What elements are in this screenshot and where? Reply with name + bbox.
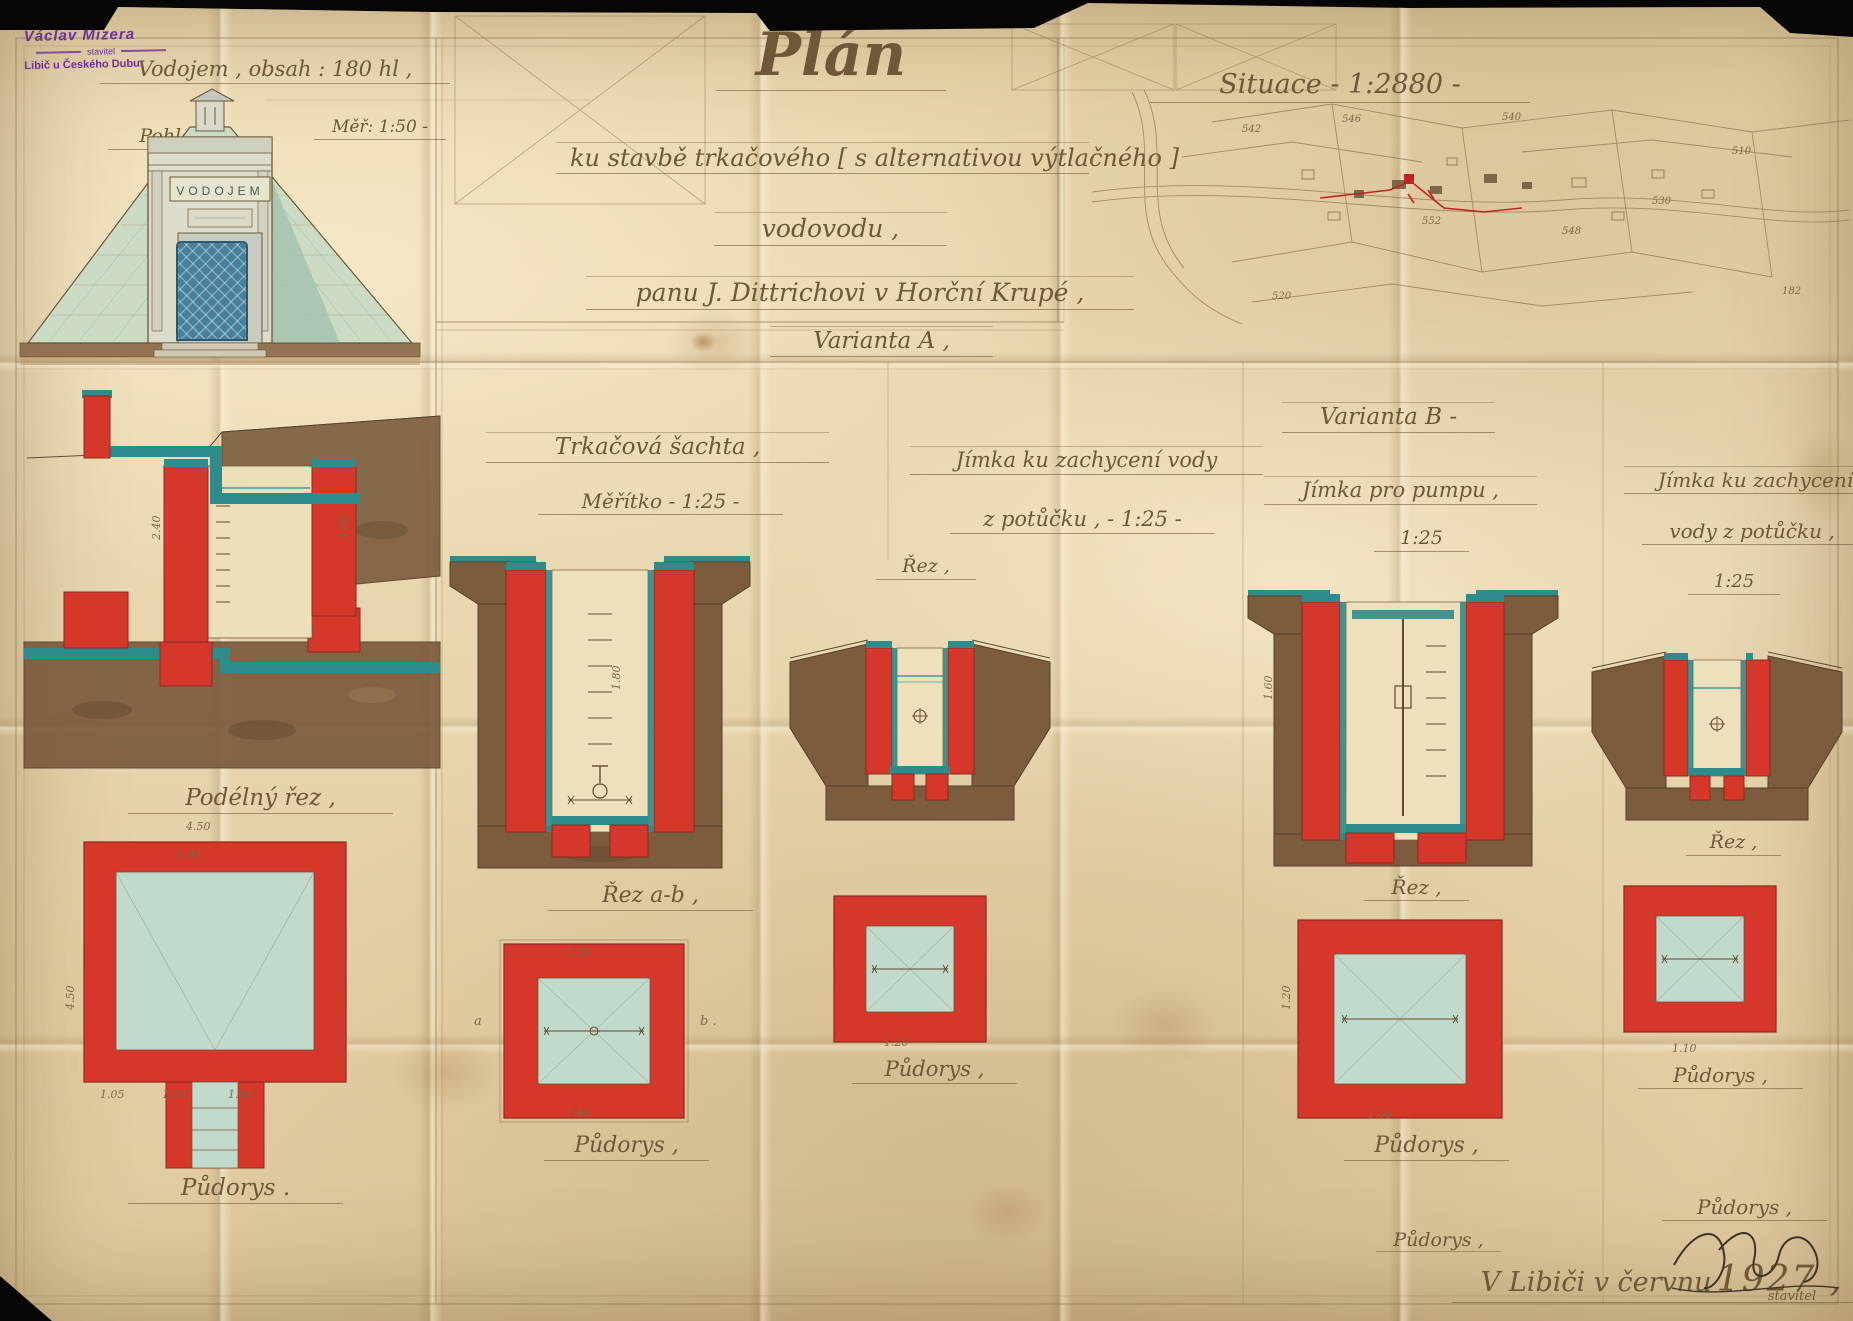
earth-side: [790, 644, 868, 786]
catchpit-a-plan-label: Půdorys ,: [852, 1058, 1017, 1084]
earth-base: [1626, 788, 1808, 820]
plan-interior: [116, 872, 314, 1050]
floor-block: [552, 825, 590, 857]
dimension: 1.40: [566, 1106, 591, 1119]
dimension: 1.20: [162, 1088, 187, 1101]
dimension: 1.20: [884, 1036, 909, 1049]
floor-block: [926, 774, 948, 800]
tower-door: [176, 241, 248, 341]
map-parcel-number: 546: [1342, 114, 1362, 125]
section-mark-b: b .: [700, 1014, 717, 1029]
earth-side: [972, 644, 1050, 786]
catchpit-b-section-drawing: [1592, 612, 1842, 822]
shaft-wall: [654, 570, 694, 832]
pit-wall: [1302, 602, 1340, 840]
floor-block: [892, 774, 914, 800]
map-parcel-number: 542: [1242, 124, 1261, 135]
signature-note: stavitel: [1742, 1290, 1842, 1304]
dimension: 1.05: [228, 1088, 253, 1101]
lantern-cap: [190, 89, 234, 101]
floor-block: [610, 825, 648, 857]
pit-wall: [1664, 660, 1688, 776]
shaft-scale: Měřítko - 1:25 -: [538, 490, 783, 515]
catchpit-a-subtitle: z potůčku , - 1:25 -: [950, 508, 1215, 534]
reservoir-wall: [164, 466, 208, 642]
map-parcel-number: 548: [1562, 226, 1581, 237]
dimension: 4.50: [186, 820, 211, 833]
floor-block: [1724, 776, 1744, 800]
stamp-role: stavitel: [87, 46, 115, 57]
pumppit-plan-drawing: [1292, 914, 1508, 1124]
pit-wall: [1746, 660, 1770, 776]
standpipe: [84, 396, 110, 458]
earth-side: [1274, 634, 1302, 834]
pumppit-section-drawing: [1248, 566, 1558, 866]
title-line-1: ku stavbě trkačového [ s alternativou vý…: [556, 142, 1089, 174]
earth-side: [1592, 656, 1666, 788]
dimension: 1.80: [610, 666, 623, 691]
title-line-3: panu J. Dittrichovi v Horční Krupé ,: [586, 276, 1134, 310]
facade-sign-text: VODOJEM: [176, 184, 263, 198]
earth-base: [826, 786, 1014, 820]
section-mark-a: a: [474, 1014, 482, 1029]
foundation-block: [64, 592, 128, 648]
dimension: 2.40: [150, 516, 163, 541]
map-parcel-number: 182: [1782, 286, 1801, 297]
catchpit-a-section-label: Řez ,: [876, 556, 976, 580]
catchpit-a-title: Jímka ku zachycení vody: [910, 446, 1263, 475]
shaft-title: Trkačová šachta ,: [486, 432, 829, 463]
map-red-route: [1320, 182, 1522, 212]
dimension: 3.00: [338, 516, 351, 541]
header-left-title: Vodojem , obsah : 180 hl ,: [100, 58, 450, 84]
situation-map: 542 546 540 552 548 530 510 182 520: [1092, 62, 1850, 362]
stamp-name: Václav Mizera: [24, 24, 224, 45]
catchpit-b-plan-label: Půdorys ,: [1638, 1064, 1803, 1089]
pudorys-extra-label: Půdorys ,: [1376, 1230, 1501, 1252]
pit-wall: [948, 648, 974, 774]
cover-slab: [1352, 610, 1454, 619]
earth-side: [1768, 656, 1842, 788]
dimension: 1.80: [1368, 1108, 1393, 1121]
catchpit-a-plan-drawing: [828, 890, 992, 1048]
paper-sheet: Václav Mizera stavitel Libič u Českého D…: [0, 0, 1853, 1321]
shaft-wall: [506, 570, 546, 832]
shaft-section-drawing: [450, 528, 750, 873]
shaft-plan-label: Půdorys ,: [544, 1134, 709, 1161]
floor-block: [1346, 833, 1394, 863]
catchpit-b-section-label: Řez ,: [1686, 832, 1781, 856]
map-parcel-number: 530: [1652, 196, 1672, 207]
pumppit-scale: 1:25: [1374, 528, 1469, 552]
dimension: 1.60: [566, 946, 591, 959]
scanned-plan-sheet: Václav Mizera stavitel Libič u Českého D…: [0, 0, 1853, 1321]
reservoir-interior: [208, 466, 312, 638]
pumppit-section-label: Řez ,: [1364, 876, 1469, 901]
reservoir-plan-label: Půdorys .: [128, 1176, 343, 1204]
catchpit-b-scale: 1:25: [1688, 572, 1780, 595]
step: [162, 343, 258, 350]
catchpit-b-plan-drawing: [1618, 880, 1782, 1038]
dimension: 4.50: [64, 986, 77, 1011]
earth-side: [478, 604, 508, 842]
wall-footing: [160, 642, 212, 686]
roof-lantern: [196, 101, 224, 131]
map-buildings: [1354, 174, 1532, 198]
pilaster: [152, 171, 162, 331]
map-parcel-number: 510: [1732, 146, 1752, 157]
dimension: 1.10: [1672, 1042, 1697, 1055]
dimension: 1.20: [1280, 986, 1293, 1011]
inlet-pipe: [100, 446, 218, 457]
pit-wall: [1466, 602, 1504, 840]
catchpit-a-section-drawing: [790, 596, 1050, 826]
step: [154, 350, 266, 357]
reservoir-wall: [312, 466, 356, 616]
pumppit-plan-label: Půdorys ,: [1344, 1134, 1509, 1161]
shaft-section-label: Řez a-b ,: [548, 884, 753, 911]
dimension: 3.00: [176, 848, 201, 861]
title-line-2: vodovodu ,: [714, 212, 947, 246]
variant-a-label: Varianta A ,: [770, 326, 993, 357]
earth-side: [1504, 634, 1532, 834]
floor-block: [1418, 833, 1466, 863]
earth-side: [692, 604, 722, 842]
catchpit-b-title: Jímka ku zachycení: [1624, 466, 1853, 494]
catchpit-b-subtitle: vody z potůčku ,: [1642, 520, 1853, 545]
shaft-plan-drawing: [498, 938, 690, 1124]
map-parcel-number: 540: [1502, 112, 1522, 123]
shaft-interior: [552, 570, 648, 832]
dimension: 1.05: [100, 1088, 125, 1101]
sheet-title: Plán: [716, 22, 946, 91]
variant-b-label: Varianta B -: [1282, 402, 1495, 433]
dimension: 1.60: [1262, 676, 1275, 701]
longitudinal-section-drawing: [12, 380, 442, 780]
pumppit-title: Jímka pro pumpu ,: [1264, 476, 1537, 505]
map-parcel-number: 552: [1422, 216, 1441, 227]
reservoir-plan-drawing: [80, 838, 350, 1168]
pit-wall: [866, 648, 892, 774]
map-parcel-number: 520: [1272, 291, 1292, 302]
pit-interior: [1346, 602, 1466, 840]
map-red-marker: [1404, 174, 1414, 184]
floor-block: [1690, 776, 1710, 800]
longitudinal-section-label: Podélný řez ,: [128, 786, 393, 814]
